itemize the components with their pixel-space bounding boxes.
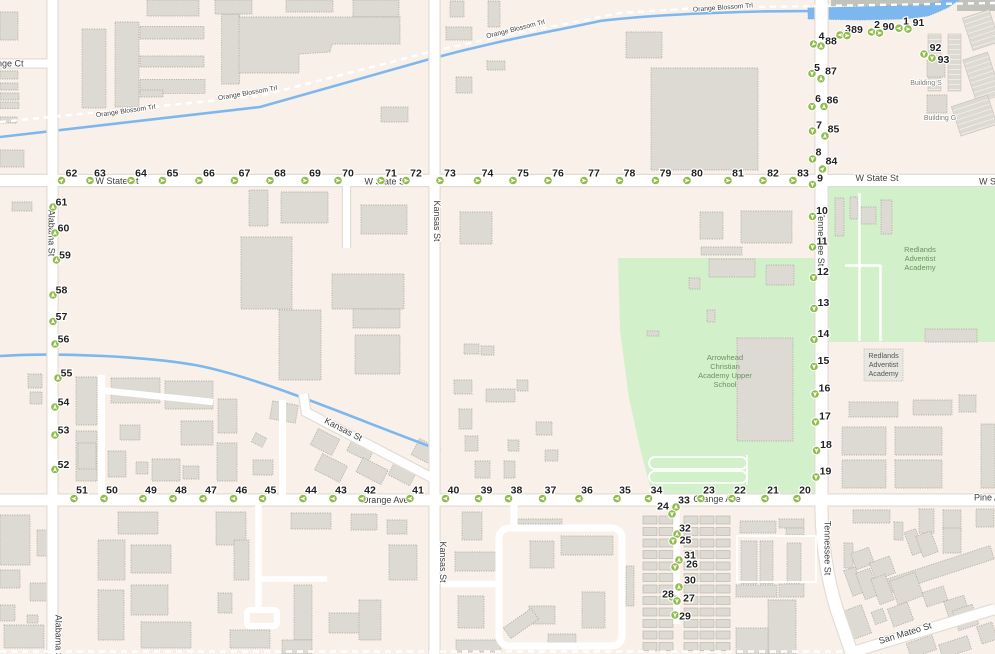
svg-text:W State St: W State St (855, 173, 899, 183)
svg-text:65: 65 (167, 168, 179, 180)
svg-text:49: 49 (145, 485, 157, 497)
svg-text:11: 11 (816, 236, 827, 248)
svg-text:86: 86 (827, 95, 839, 107)
svg-text:74: 74 (482, 168, 494, 180)
svg-text:58: 58 (56, 285, 68, 297)
svg-text:13: 13 (818, 297, 830, 309)
svg-text:91: 91 (913, 17, 925, 29)
svg-text:12: 12 (817, 266, 829, 278)
svg-text:45: 45 (265, 485, 277, 497)
svg-text:53: 53 (58, 425, 70, 437)
svg-text:15: 15 (818, 355, 830, 367)
svg-text:84: 84 (826, 156, 838, 168)
svg-text:92: 92 (930, 42, 942, 54)
svg-text:28: 28 (662, 589, 674, 601)
svg-text:14: 14 (818, 328, 830, 340)
svg-text:63: 63 (94, 168, 106, 180)
svg-text:Academy: Academy (869, 369, 899, 378)
svg-text:20: 20 (799, 485, 811, 497)
svg-text:8: 8 (816, 147, 822, 159)
svg-text:72: 72 (410, 168, 422, 180)
svg-text:87: 87 (825, 66, 837, 78)
svg-text:62: 62 (66, 168, 78, 180)
svg-text:6: 6 (815, 93, 821, 105)
svg-text:69: 69 (309, 168, 321, 180)
svg-text:30: 30 (684, 575, 696, 587)
svg-text:4: 4 (819, 31, 825, 43)
svg-text:33: 33 (678, 495, 690, 507)
svg-text:16: 16 (819, 383, 831, 395)
svg-text:25: 25 (680, 535, 692, 547)
svg-text:18: 18 (820, 439, 832, 451)
svg-text:Orange Ct: Orange Ct (0, 59, 24, 69)
svg-text:Alabama St: Alabama St (54, 615, 64, 654)
svg-text:85: 85 (828, 124, 840, 136)
svg-text:77: 77 (588, 168, 600, 180)
svg-text:50: 50 (106, 485, 118, 497)
svg-text:82: 82 (767, 168, 779, 180)
svg-text:57: 57 (56, 311, 68, 323)
svg-text:Adventist: Adventist (869, 360, 899, 369)
svg-text:21: 21 (767, 485, 779, 497)
svg-text:10: 10 (816, 205, 828, 217)
svg-text:44: 44 (305, 485, 317, 497)
svg-text:90: 90 (883, 21, 895, 33)
svg-text:Redlands: Redlands (868, 351, 899, 360)
svg-text:59: 59 (59, 250, 71, 262)
svg-text:78: 78 (624, 168, 636, 180)
svg-text:46: 46 (236, 485, 248, 497)
svg-text:35: 35 (619, 485, 631, 497)
svg-text:81: 81 (732, 168, 744, 180)
svg-text:73: 73 (444, 168, 456, 180)
svg-text:Redlands: Redlands (904, 245, 936, 254)
svg-text:Arrowhead: Arrowhead (707, 353, 743, 362)
svg-text:Academy Upper: Academy Upper (698, 371, 752, 380)
svg-text:66: 66 (203, 168, 215, 180)
svg-text:56: 56 (58, 334, 70, 346)
svg-text:Building S: Building S (910, 80, 942, 87)
svg-text:27: 27 (683, 593, 695, 605)
svg-text:22: 22 (734, 485, 746, 497)
svg-text:71: 71 (385, 168, 397, 180)
svg-text:38: 38 (511, 485, 523, 497)
svg-text:80: 80 (691, 168, 703, 180)
svg-text:41: 41 (412, 485, 424, 497)
svg-text:17: 17 (819, 411, 831, 423)
svg-text:54: 54 (58, 397, 70, 409)
svg-text:Adventist: Adventist (905, 254, 937, 263)
svg-text:43: 43 (335, 485, 347, 497)
svg-text:36: 36 (581, 485, 593, 497)
svg-text:Kansas St: Kansas St (438, 541, 448, 583)
svg-text:9: 9 (817, 173, 823, 185)
svg-text:34: 34 (651, 485, 663, 497)
svg-text:Pine Ave: Pine Ave (974, 493, 995, 503)
svg-text:75: 75 (517, 168, 529, 180)
svg-text:W State St: W State St (979, 177, 995, 187)
svg-text:67: 67 (239, 168, 251, 180)
svg-text:5: 5 (814, 62, 820, 74)
svg-text:19: 19 (820, 466, 832, 478)
svg-text:48: 48 (175, 485, 187, 497)
svg-text:60: 60 (58, 223, 70, 235)
svg-text:37: 37 (545, 485, 557, 497)
svg-text:40: 40 (448, 485, 460, 497)
svg-text:64: 64 (135, 168, 147, 180)
svg-text:47: 47 (205, 485, 217, 497)
svg-text:Building G: Building G (924, 115, 956, 122)
svg-text:61: 61 (56, 197, 68, 209)
svg-text:42: 42 (364, 485, 376, 497)
svg-text:School: School (714, 380, 737, 389)
svg-text:23: 23 (703, 485, 715, 497)
svg-text:83: 83 (797, 168, 809, 180)
svg-text:26: 26 (686, 559, 698, 571)
svg-text:39: 39 (481, 485, 493, 497)
svg-text:Christian: Christian (710, 362, 740, 371)
svg-text:51: 51 (76, 485, 88, 497)
svg-text:Academy: Academy (904, 263, 936, 272)
svg-text:Orange Ave: Orange Ave (361, 495, 408, 505)
svg-text:70: 70 (342, 168, 354, 180)
svg-text:7: 7 (816, 120, 822, 132)
svg-text:93: 93 (938, 54, 950, 66)
svg-text:Kansas St: Kansas St (432, 200, 442, 242)
svg-text:24: 24 (657, 501, 669, 513)
svg-text:88: 88 (825, 36, 837, 48)
svg-text:Tennessee St: Tennessee St (823, 521, 833, 576)
svg-text:29: 29 (679, 611, 691, 623)
svg-text:79: 79 (660, 168, 672, 180)
svg-text:76: 76 (552, 168, 564, 180)
svg-text:89: 89 (851, 24, 863, 36)
svg-text:32: 32 (679, 523, 691, 535)
svg-text:55: 55 (61, 368, 73, 380)
svg-text:52: 52 (58, 459, 70, 471)
svg-text:68: 68 (274, 168, 286, 180)
